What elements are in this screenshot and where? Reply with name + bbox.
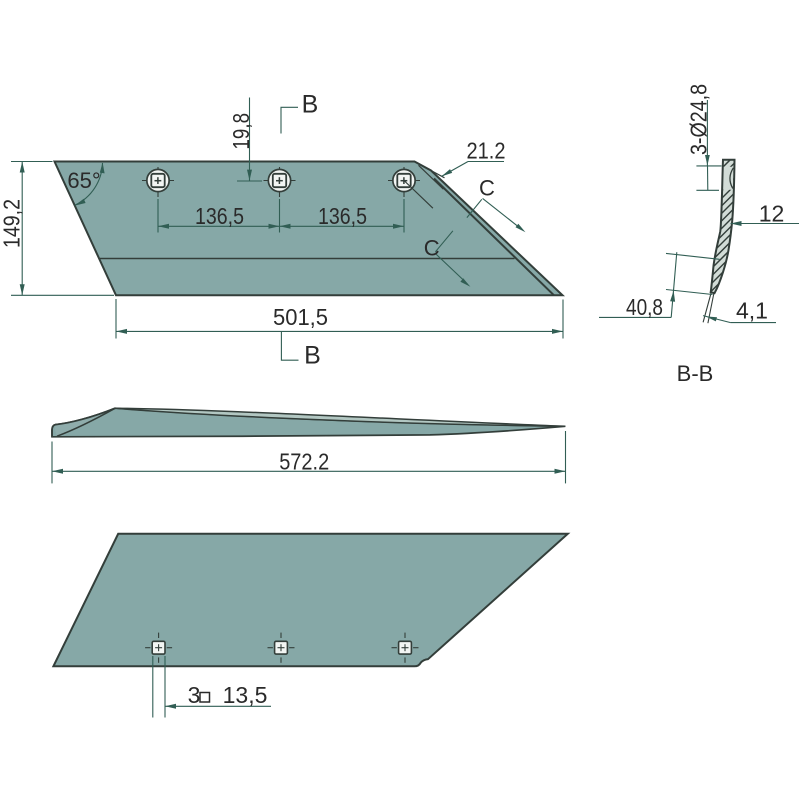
svg-text:19,8: 19,8 xyxy=(228,113,254,150)
svg-text:C: C xyxy=(424,235,440,260)
svg-text:3-Ø24,8: 3-Ø24,8 xyxy=(686,84,712,155)
svg-text:12: 12 xyxy=(759,201,785,227)
svg-text:B-B: B-B xyxy=(677,361,714,386)
svg-text:4,1: 4,1 xyxy=(736,298,768,324)
svg-text:3: 3 xyxy=(188,682,201,708)
svg-text:13,5: 13,5 xyxy=(223,682,268,708)
svg-text:65°: 65° xyxy=(67,168,100,193)
svg-text:C: C xyxy=(479,175,495,200)
svg-text:149,2: 149,2 xyxy=(0,199,25,248)
svg-text:501,5: 501,5 xyxy=(273,304,328,330)
svg-text:40,8: 40,8 xyxy=(626,294,663,320)
svg-text:B: B xyxy=(302,90,319,118)
svg-text:B: B xyxy=(304,342,321,370)
svg-text:136,5: 136,5 xyxy=(195,203,244,229)
svg-text:136,5: 136,5 xyxy=(318,203,367,229)
svg-text:572.2: 572.2 xyxy=(279,449,329,475)
svg-text:21.2: 21.2 xyxy=(467,138,506,164)
